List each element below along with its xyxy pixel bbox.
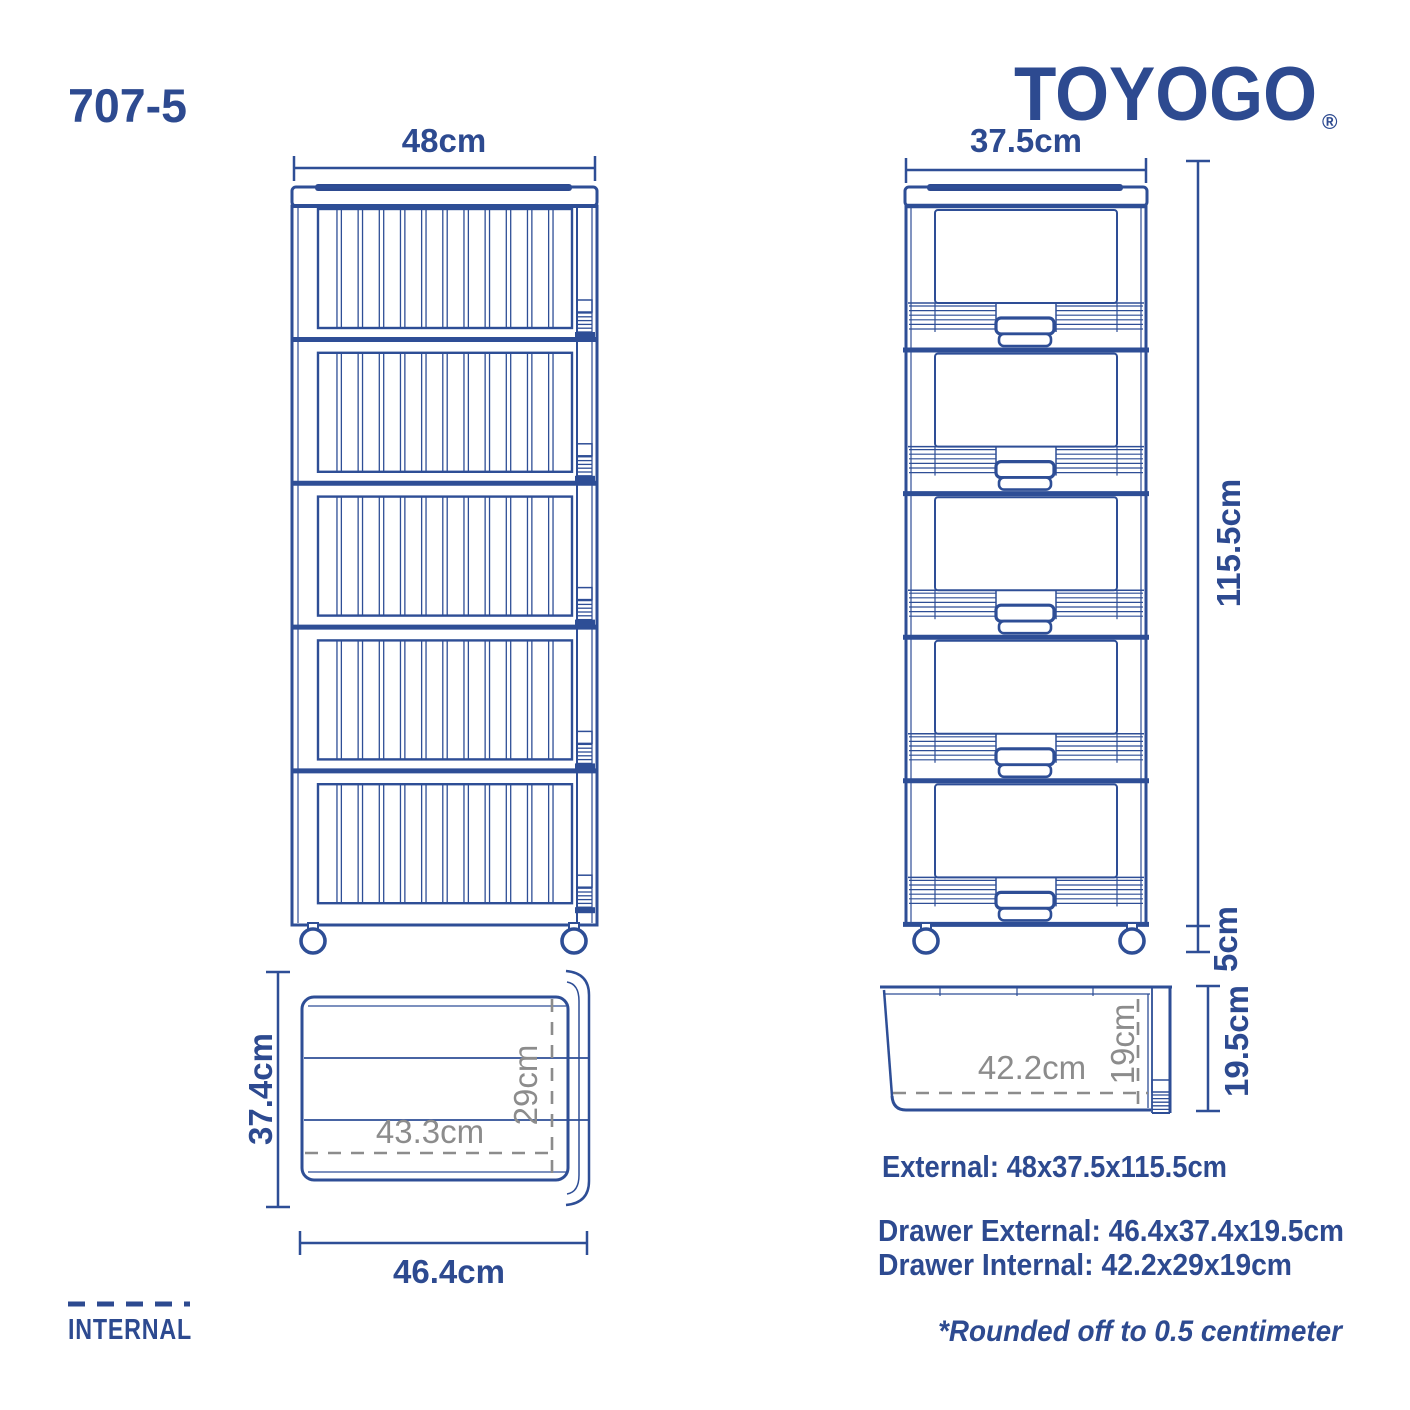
dimension-labels: 48cm 37.5cm 115.5cm 5cm 37.4cm 46.4cm 43… bbox=[242, 122, 1255, 1290]
drawer-internal-length2-label: 42.2cm bbox=[978, 1049, 1086, 1086]
drawer-depth-label: 37.4cm bbox=[242, 1033, 279, 1145]
side-view bbox=[903, 158, 1210, 953]
front-casters bbox=[301, 923, 586, 953]
spec-drawer-external: Drawer External: 46.4x37.4x19.5cm bbox=[878, 1213, 1344, 1248]
drawer-grip bbox=[1152, 1080, 1170, 1092]
legend: INTERNAL bbox=[68, 1304, 192, 1346]
dimension-side-height bbox=[1186, 161, 1210, 952]
drawer-width-label: 46.4cm bbox=[393, 1253, 505, 1290]
header: 707-5 TOYOGO ® bbox=[68, 52, 1338, 137]
side-depth-label: 37.5cm bbox=[970, 122, 1082, 159]
registered-trademark: ® bbox=[1322, 111, 1338, 134]
dimension-side-depth bbox=[906, 158, 1146, 183]
spec-external: External: 48x37.5x115.5cm bbox=[882, 1149, 1227, 1184]
wheel-height-label: 5cm bbox=[1207, 906, 1244, 972]
dimension-drawer-width bbox=[300, 1231, 587, 1255]
dimension-diagram: 707-5 TOYOGO ® bbox=[0, 0, 1410, 1410]
drawer-internal-height-label: 19cm bbox=[1104, 1004, 1141, 1085]
front-width-label: 48cm bbox=[402, 122, 486, 159]
front-view bbox=[292, 156, 597, 953]
front-drawer-stack bbox=[292, 209, 597, 913]
drawer-internal-length-label: 43.3cm bbox=[376, 1113, 484, 1150]
model-number: 707-5 bbox=[68, 79, 187, 132]
side-casters bbox=[914, 923, 1144, 953]
side-height-label: 115.5cm bbox=[1210, 479, 1247, 607]
drawer-height-label: 19.5cm bbox=[1218, 985, 1255, 1097]
rounding-note: *Rounded off to 0.5 centimeter bbox=[938, 1315, 1344, 1348]
side-drawer-stack bbox=[903, 210, 1149, 924]
dimension-drawer-height bbox=[1196, 986, 1220, 1111]
front-body bbox=[292, 206, 597, 925]
legend-internal-label: INTERNAL bbox=[68, 1314, 192, 1346]
dimension-front-width bbox=[294, 156, 595, 181]
side-body bbox=[906, 206, 1146, 925]
spec-text-block: External: 48x37.5x115.5cm Drawer Externa… bbox=[878, 1149, 1344, 1348]
spec-drawer-internal: Drawer Internal: 42.2x29x19cm bbox=[878, 1247, 1292, 1282]
drawer-internal-depth-label: 29cm bbox=[507, 1045, 544, 1126]
